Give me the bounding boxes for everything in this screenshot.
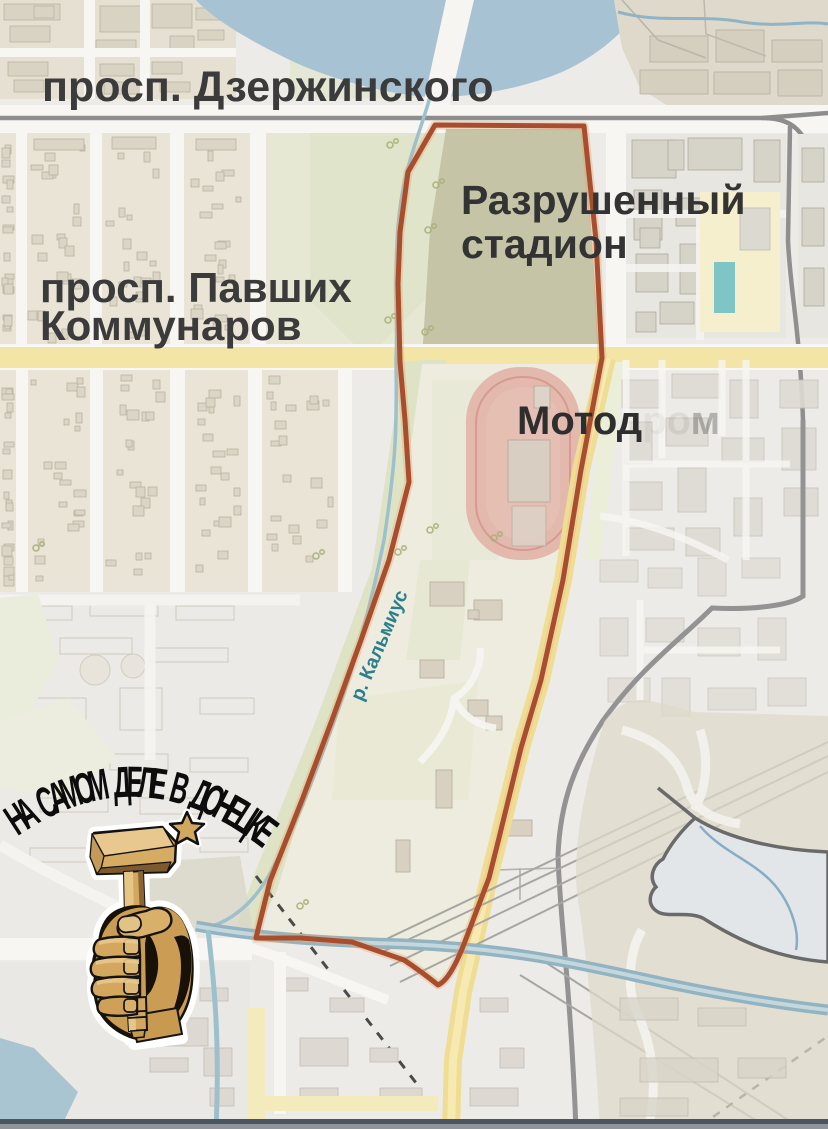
svg-text:стадион: стадион — [461, 221, 628, 267]
svg-text:просп. Дзержинского: просп. Дзержинского — [42, 63, 493, 111]
svg-text:Разрушенный: Разрушенный — [461, 177, 746, 223]
svg-text:Мотодром: Мотодром — [517, 399, 720, 443]
svg-text:Коммунаров: Коммунаров — [40, 302, 302, 349]
